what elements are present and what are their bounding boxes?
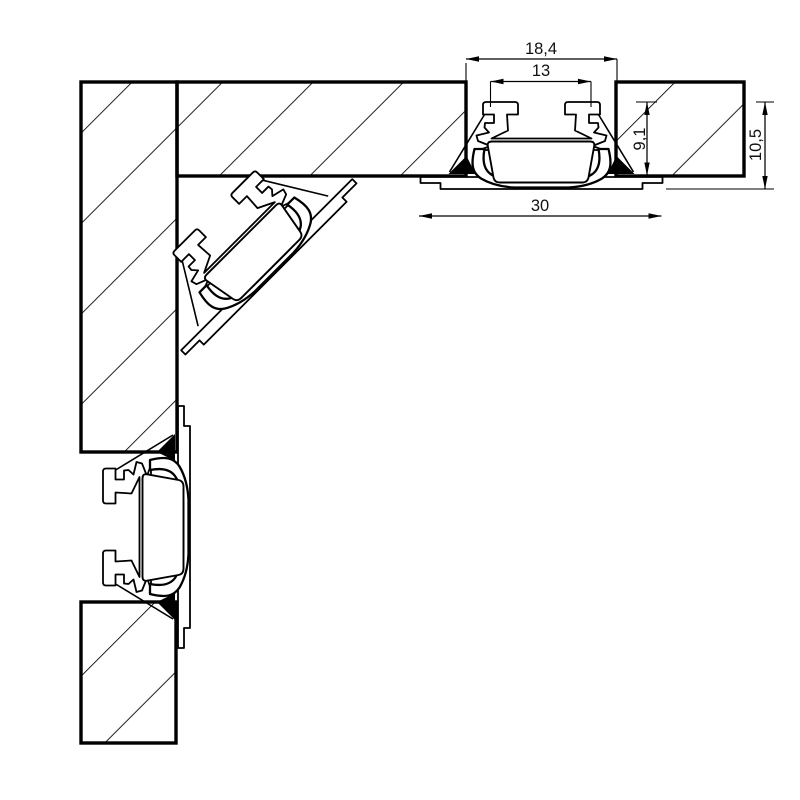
dim-flange-width-label: 30 [531, 197, 549, 215]
dim-recess-depth-label: 9,1 [631, 128, 649, 151]
technical-drawing: 18,4 13 9,1 10,5 30 [0, 0, 800, 800]
dim-recess-width-label: 18,4 [525, 40, 557, 58]
wall-bottom-section [81, 602, 176, 743]
dim-inner-width: 13 [491, 62, 592, 107]
profile-instances [103, 102, 663, 648]
ceiling-left-section [177, 82, 466, 176]
dim-inner-width-label: 13 [532, 62, 550, 80]
dim-flange-width: 30 [419, 197, 662, 216]
dim-total-height-label: 10,5 [747, 129, 765, 161]
wall-left-section [81, 82, 177, 452]
